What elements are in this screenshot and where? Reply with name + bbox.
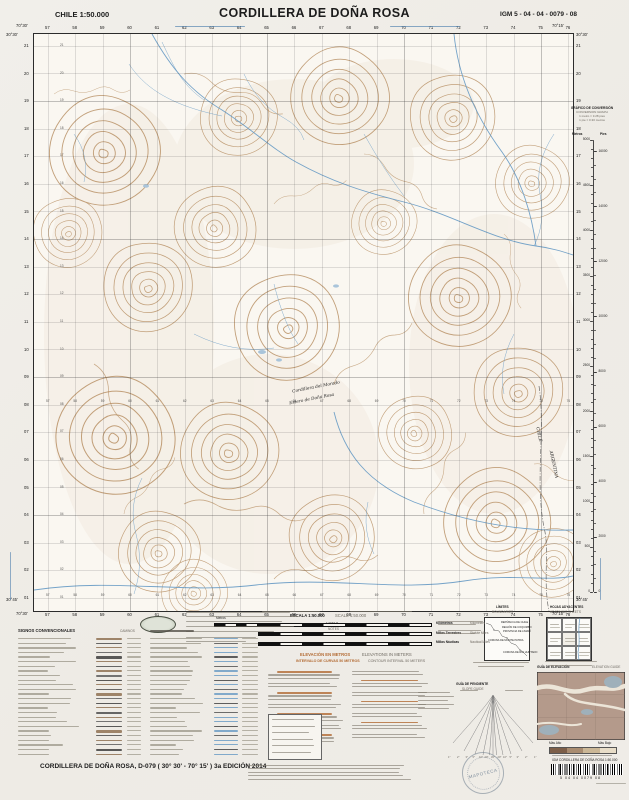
fine-print-line <box>505 690 523 691</box>
margin-note-blue-vertical <box>10 552 11 600</box>
grid-northing-inner: 09 <box>60 375 64 378</box>
grid-northing-left: 07 <box>24 430 29 434</box>
fine-print-line <box>242 693 258 694</box>
contour-interval-en: CONTOUR INTERVAL 50 METERS <box>368 660 425 664</box>
fine-print-line <box>18 703 70 704</box>
fine-print-line <box>127 656 141 657</box>
fine-print-line <box>127 670 141 671</box>
grid-northing-left: 06 <box>24 458 29 462</box>
topographic-map: CHILE ARGENTINA 575757575858585859595959… <box>33 33 574 612</box>
credit-line <box>186 631 274 632</box>
grid-northing-inner: 03 <box>60 541 64 544</box>
grid-easting-inner: 61 <box>156 594 160 597</box>
fine-print-line <box>150 726 187 727</box>
fine-print-line <box>272 719 314 720</box>
credit-line <box>186 621 282 622</box>
fine-print-line <box>352 725 422 726</box>
fine-print-line <box>127 735 141 736</box>
corner-lat: 30°45' <box>576 598 588 602</box>
ruler-tick <box>591 294 593 295</box>
legend-symbol <box>214 721 238 722</box>
elevguide-subtitle: ELEVATION GUIDE <box>592 666 620 669</box>
grid-easting-top: 67 <box>319 26 324 30</box>
fine-print-line <box>127 703 141 704</box>
fine-print-line <box>352 716 422 717</box>
ruler-tick <box>591 556 593 557</box>
grid-easting-top: 68 <box>346 26 351 30</box>
legend-symbol <box>214 684 238 685</box>
fine-print-line <box>596 783 626 784</box>
map-sheet: CHILE 1:50.000 CORDILLERA DE DOÑA ROSA I… <box>0 0 629 800</box>
grid-easting-top: 65 <box>264 26 269 30</box>
paragraph-heading <box>361 701 417 703</box>
grid-easting-inner: 67 <box>320 594 324 597</box>
fine-print-line <box>242 721 258 722</box>
ruler-feet-value: 14000 <box>599 205 608 208</box>
paragraph-heading <box>361 722 417 724</box>
fine-print-line <box>268 674 340 675</box>
elevation-note-en: ELEVATIONS IN METERS <box>362 653 412 657</box>
fine-print-line <box>242 754 258 755</box>
fine-print-line <box>150 656 202 657</box>
grid-northing-inner: 15 <box>60 210 64 213</box>
fine-print-line <box>242 717 258 718</box>
ruler-tick <box>591 484 593 485</box>
fine-print-line <box>18 689 76 690</box>
ruler-feet-value: 12000 <box>599 260 608 263</box>
fine-print-line <box>18 656 50 657</box>
ruler-tick <box>591 402 593 403</box>
grid-northing-left: 04 <box>24 513 29 517</box>
grid-easting-inner: 71 <box>430 594 434 597</box>
ruler-tick <box>591 420 593 421</box>
grid-easting-inner: 75 <box>539 594 543 597</box>
legend-symbol <box>96 666 122 667</box>
ruler-meters-value: 0 <box>570 590 590 593</box>
corner-lon: 70°30' <box>16 612 28 616</box>
fine-print-line <box>18 740 49 741</box>
grid-easting-inner: 64 <box>238 400 242 403</box>
legend-symbol <box>214 744 238 745</box>
fine-print-line <box>127 647 141 648</box>
hojas-title: HOJAS ADYACENTES <box>550 606 583 609</box>
fine-print-line <box>268 683 330 684</box>
pendiente-degree: 10° <box>503 757 507 760</box>
fine-print-line <box>150 675 192 676</box>
grid-easting-bottom: 57 <box>45 613 50 617</box>
grid-easting-inner: 71 <box>430 400 434 403</box>
ruler-tick <box>591 258 593 259</box>
fine-print-line <box>150 666 190 667</box>
fine-print-line <box>268 695 332 696</box>
fine-print-line <box>150 749 183 750</box>
ruler-tick <box>590 366 593 367</box>
grid-northing-right: 21 <box>576 44 581 48</box>
ruler-tick <box>591 267 593 268</box>
fine-print-line <box>438 633 475 634</box>
ruler-tick <box>591 529 593 530</box>
legend-symbol <box>214 735 238 736</box>
fine-print-line <box>127 689 141 690</box>
fine-print-line <box>242 647 258 648</box>
grid-northing-left: 10 <box>24 348 29 352</box>
legend-symbol <box>214 754 238 755</box>
grid-easting-inner: 68 <box>347 400 351 403</box>
corner-lon: 70°30' <box>16 24 28 28</box>
barcode-label: IGM CORDILLERA DE DOÑA ROSA 1:50.000 <box>552 759 617 762</box>
fine-print-line <box>127 740 141 741</box>
grid-easting-inner: 63 <box>210 400 214 403</box>
fine-print-line <box>242 643 258 644</box>
grid-easting-inner: 57 <box>46 594 50 597</box>
paragraph-heading <box>277 692 332 694</box>
credit-line <box>186 616 298 617</box>
grid-northing-inner: 13 <box>60 265 64 268</box>
fine-print-line <box>18 717 56 718</box>
ruler-tick <box>591 520 593 521</box>
ruler-tick <box>591 285 593 286</box>
footer-fine-print <box>248 765 404 766</box>
ruler-tick <box>591 429 593 430</box>
pendiente-degree: 1° <box>534 757 536 760</box>
pendiente-note <box>418 708 449 709</box>
grid-northing-left: 12 <box>24 292 29 296</box>
grid-northing-inner: 21 <box>60 44 64 47</box>
grid-easting-inner: 68 <box>347 594 351 597</box>
ruler-feet-value: 4000 <box>599 480 606 483</box>
legend-symbol <box>96 703 122 704</box>
fine-print-line <box>18 726 79 727</box>
fine-print-line <box>18 684 73 685</box>
fine-print-line <box>127 652 141 653</box>
fine-print-line <box>242 698 258 699</box>
fine-print-line <box>150 643 201 644</box>
ruler-tick <box>591 493 593 494</box>
grid-easting-inner: 57 <box>46 400 50 403</box>
fine-print-line <box>18 643 66 644</box>
grid-northing-left: 16 <box>24 182 29 186</box>
grid-northing-inner: 18 <box>60 127 64 130</box>
fine-print-line <box>150 717 177 718</box>
fine-print-line <box>242 666 258 667</box>
fine-print-line <box>150 684 187 685</box>
scale-bar-unit-es: Millas Náuticas <box>436 641 459 644</box>
grid-easting-top: 74 <box>511 26 516 30</box>
fine-print-line <box>150 652 198 653</box>
fine-print-line <box>352 704 426 705</box>
conversion-ruler: 5000450040003500300025002000150010005000… <box>560 140 624 592</box>
pendiente-title: GUÍA DE PENDIENTE <box>456 683 488 686</box>
fine-print-line <box>127 638 141 639</box>
pendiente-degree: 45° <box>491 757 495 760</box>
fine-print-line <box>127 643 141 644</box>
fine-print-line <box>127 661 141 662</box>
ruler-tick <box>591 538 593 539</box>
corner-lat: 30°30' <box>576 33 588 37</box>
ruler-tick <box>591 511 593 512</box>
ruler-meters-value: 4500 <box>570 184 590 187</box>
grid-easting-bottom: 58 <box>72 613 77 617</box>
fine-print-line <box>545 661 597 662</box>
grid-easting-bottom: 71 <box>429 613 434 617</box>
grid-northing-inner: 05 <box>60 486 64 489</box>
elevation-guide-map <box>537 672 625 740</box>
fine-print-line <box>352 683 428 684</box>
fine-print-line <box>18 744 63 745</box>
ruler-tick <box>591 348 593 349</box>
grid-easting-top: 60 <box>127 26 132 30</box>
fine-print-line <box>272 745 314 746</box>
conversion-col-meters: Metros <box>572 133 582 136</box>
grid-northing-inner: 01 <box>60 596 64 599</box>
grid-easting-top: 76 <box>566 26 571 30</box>
fine-print-line <box>127 717 141 718</box>
conversion-col-feet: Pies <box>600 133 607 136</box>
fine-print-line <box>150 670 193 671</box>
ruler-feet-value: 6000 <box>599 425 606 428</box>
grid-northing-left: 21 <box>24 44 29 48</box>
legend-symbol <box>96 698 122 699</box>
limites-title: LÍMITES <box>496 606 509 609</box>
grid-northing-inner: 12 <box>60 292 64 295</box>
fine-print-line <box>478 666 524 667</box>
fine-print-line <box>242 680 258 681</box>
grid-easting-inner: 70 <box>402 594 406 597</box>
ruler-tick <box>590 592 593 593</box>
corner-lat: 30°30' <box>6 33 18 37</box>
fine-print-line <box>242 656 258 657</box>
legend-symbol <box>96 744 122 745</box>
grid-easting-top: 73 <box>483 26 488 30</box>
legend-symbol <box>96 754 122 755</box>
elevguide-title: GUÍA DE ELEVACIÓN <box>537 666 569 669</box>
credit-line <box>186 612 290 613</box>
ruler-tick <box>591 339 593 340</box>
notas-en: NOTES <box>328 628 339 631</box>
fine-print-line <box>352 728 427 729</box>
scale-bar <box>258 642 432 646</box>
ruler-tick <box>591 312 593 313</box>
fine-print-line <box>242 735 258 736</box>
fine-print-line <box>272 739 313 740</box>
ruler-tick <box>591 149 593 150</box>
grid-easting-inner: 62 <box>183 594 187 597</box>
fine-print-line <box>127 698 141 699</box>
grid-northing-inner: 16 <box>60 182 64 185</box>
grid-northing-left: 03 <box>24 541 29 545</box>
grid-easting-inner: 72 <box>457 400 461 403</box>
pendiente-degree: 20° <box>485 757 489 760</box>
fine-print-line <box>150 693 182 694</box>
legend-symbol <box>96 740 122 741</box>
legend-symbol <box>96 675 122 677</box>
legend-symbol <box>96 717 122 718</box>
legend-symbol <box>96 689 122 690</box>
legend-symbol <box>96 712 122 714</box>
legend-symbol <box>214 698 238 699</box>
legend-symbol <box>214 740 238 741</box>
ruler-tick <box>591 158 593 159</box>
ruler-tick <box>591 248 593 249</box>
grid-easting-inner: 69 <box>375 400 379 403</box>
fine-print-line <box>18 661 76 662</box>
legend-symbol <box>96 726 122 727</box>
grid-northing-left: 14 <box>24 237 29 241</box>
grid-northing-inner: 10 <box>60 348 64 351</box>
elevguide-high-label: Más Alto <box>549 742 561 745</box>
footer-fine-print <box>248 768 400 769</box>
grid-easting-top: 66 <box>292 26 297 30</box>
fine-print-line <box>242 638 258 639</box>
limites-label: PROVINCIA DE LIMARÍ <box>503 631 531 634</box>
legend-symbol <box>96 693 122 695</box>
legend-symbol <box>214 652 238 653</box>
fine-print-line <box>552 755 612 756</box>
fine-print-line <box>127 712 141 713</box>
legend-col2-header <box>150 630 194 632</box>
ruler-tick <box>590 411 593 412</box>
fine-print-line <box>350 611 412 612</box>
fine-print-line <box>18 693 49 694</box>
scale-bar-unit-en: Nautical Miles <box>470 641 490 644</box>
legend-symbol <box>214 726 238 727</box>
fine-print-line <box>127 675 141 676</box>
fine-print-line <box>150 730 202 731</box>
grid-northing-inner: 06 <box>60 458 64 461</box>
ruler-tick <box>591 574 593 575</box>
grid-easting-inner: 70 <box>402 400 406 403</box>
ruler-tick <box>591 303 593 304</box>
barcode-digits: 5 04 04 0079 08 <box>560 777 601 781</box>
grid-easting-top: 69 <box>374 26 379 30</box>
grid-northing-inner: 20 <box>60 72 64 75</box>
ruler-feet-value: 8000 <box>599 370 606 373</box>
pendiente-degree: 5° <box>473 757 475 760</box>
fine-print-line <box>127 744 141 745</box>
legend-symbol <box>96 647 122 648</box>
fine-print-line <box>150 712 200 713</box>
legend-symbol <box>96 730 122 732</box>
grid-easting-inner: 72 <box>457 594 461 597</box>
fine-print-line <box>150 754 179 755</box>
ruler-tick <box>591 384 593 385</box>
fine-print-line <box>150 707 176 708</box>
ruler-tick <box>591 212 593 213</box>
legend-symbol <box>214 703 238 704</box>
scale-label-en: SCALE 1:50.000 <box>335 614 366 618</box>
ruler-feet-value: 16000 <box>599 150 608 153</box>
fine-print-line <box>242 712 258 713</box>
legend-symbol <box>214 666 238 667</box>
fine-print-line <box>127 749 141 750</box>
pendiente-degree: 5° <box>510 757 512 760</box>
legend-symbol <box>96 749 122 751</box>
pendiente-note <box>418 696 454 697</box>
scale-meters-unit: Metros <box>216 617 226 620</box>
legend-table-box <box>268 714 322 760</box>
grid-easting-inner: 60 <box>128 594 132 597</box>
ruler-tick <box>590 230 593 231</box>
fine-print-line <box>18 735 51 736</box>
fine-print-line <box>18 680 56 681</box>
ruler-tick <box>591 438 593 439</box>
grid-easting-bottom: 60 <box>127 613 132 617</box>
ruler-meters-value: 4000 <box>570 229 590 232</box>
grid-northing-left: 11 <box>24 320 28 324</box>
grid-northing-left: 02 <box>24 568 29 572</box>
grid-easting-inner: 75 <box>539 400 543 403</box>
fine-print-line <box>150 689 184 690</box>
fine-print-line <box>150 680 190 681</box>
fine-print-line <box>242 689 258 690</box>
limites-label: REGIÓN DE COQUIMBO <box>502 627 532 630</box>
grid-northing-right: 19 <box>576 99 581 103</box>
fine-print-line <box>242 661 258 662</box>
grid-easting-inner: 67 <box>320 400 324 403</box>
pendiente-degree: 2° <box>457 757 459 760</box>
pendiente-note <box>418 700 448 701</box>
fine-print-line <box>150 703 203 704</box>
grid-northing-left: 17 <box>24 154 29 158</box>
elevation-note-es: ELEVACIÓN EN METROS <box>300 653 350 657</box>
fine-print-line <box>18 730 49 731</box>
boundaries-diagram: REPÚBLICA DE CHILEREGIÓN DE COQUIMBOPROV… <box>484 617 530 661</box>
fine-print-line <box>127 680 141 681</box>
ruler-meters-value: 2000 <box>570 410 590 413</box>
fine-print-line <box>268 707 336 708</box>
grid-northing-right: 20 <box>576 72 581 76</box>
signos-title: SIGNOS CONVENCIONALES <box>18 629 75 633</box>
pendiente-degree: 3° <box>466 757 468 760</box>
grid-easting-top: 61 <box>155 26 160 30</box>
fine-print-line <box>150 735 193 736</box>
fine-print-line <box>242 740 258 741</box>
paragraph-heading <box>361 680 417 682</box>
ruler-meters-value: 1000 <box>570 500 590 503</box>
fine-print-line <box>150 740 194 741</box>
ruler-tick <box>591 447 593 448</box>
fine-print-line <box>268 704 341 705</box>
pendiente-degree: 20° <box>498 757 502 760</box>
fine-print-line <box>150 721 185 722</box>
fine-print-line <box>242 652 258 653</box>
fine-print-line <box>18 721 67 722</box>
grid-northing-left: 19 <box>24 99 29 103</box>
ruler-tick <box>591 465 593 466</box>
fine-print-line <box>127 707 141 708</box>
ruler-tick <box>591 239 593 240</box>
ruler-meters-value: 500 <box>570 545 590 548</box>
ruler-tick <box>590 321 593 322</box>
ruler-tick <box>590 185 593 186</box>
ruler-tick <box>590 140 593 141</box>
grid-easting-inner: 66 <box>293 594 297 597</box>
fine-print-line <box>18 670 48 671</box>
grid-easting-inner: 69 <box>375 594 379 597</box>
ruler-meters-value: 5000 <box>570 138 590 141</box>
conversion-graph: GRÁFICO DE CONVERSIÓN CONVERSION GRAPH 1… <box>560 106 624 618</box>
pendiente-degree: 3° <box>517 757 519 760</box>
fine-print-line <box>18 749 49 750</box>
limites-label: COMUNA DE MONTE PATRIA <box>488 640 524 643</box>
grid-northing-inner: 07 <box>60 430 64 433</box>
legend-symbol <box>96 638 122 640</box>
ruler-tick <box>591 583 593 584</box>
grid-northing-inner: 11 <box>60 320 63 323</box>
grid-easting-inner: 63 <box>210 594 214 597</box>
ruler-tick <box>590 547 593 548</box>
ruler-tick <box>590 456 593 457</box>
